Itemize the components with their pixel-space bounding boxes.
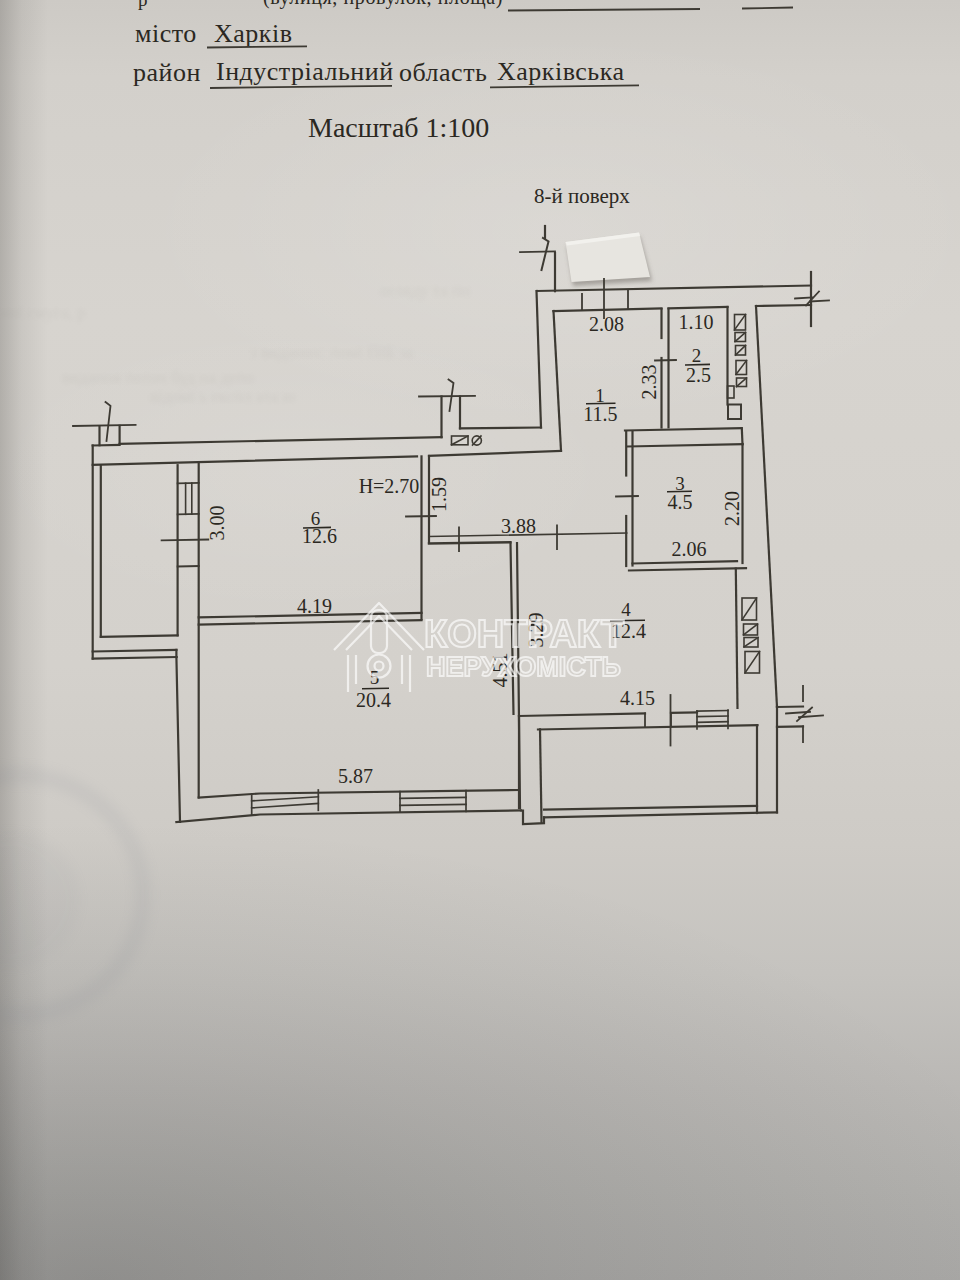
svg-text:4.15: 4.15	[620, 687, 655, 709]
svg-text:район: район	[133, 58, 201, 87]
svg-text:20.4: 20.4	[356, 689, 391, 711]
svg-text:2: 2	[692, 345, 702, 366]
svg-text:видання поточ буд на депо: видання поточ буд на депо	[62, 368, 254, 387]
svg-text:3.88: 3.88	[501, 515, 536, 537]
svg-text:11.5: 11.5	[583, 403, 617, 425]
svg-text:огляду та пн: огляду та пн	[380, 281, 470, 300]
svg-text:4.19: 4.19	[297, 595, 332, 617]
svg-text:2.20: 2.20	[721, 491, 743, 526]
svg-text:12.6: 12.6	[302, 525, 337, 547]
svg-text:2.5: 2.5	[686, 364, 711, 386]
svg-text:2.33: 2.33	[638, 365, 660, 400]
svg-text:8-й поверх: 8-й поверх	[534, 184, 630, 208]
svg-text:Масштаб 1:100: Масштаб 1:100	[308, 112, 489, 143]
svg-text:1.10: 1.10	[679, 311, 714, 333]
svg-text:ині смуга, р: ині смуга, р	[0, 303, 86, 322]
svg-text:3.00: 3.00	[206, 506, 228, 541]
svg-text:р: р	[138, 0, 148, 10]
svg-text:Харківська: Харківська	[497, 57, 624, 86]
svg-text:Індустріальний: Індустріальний	[216, 57, 394, 86]
svg-text:5.87: 5.87	[338, 765, 373, 787]
svg-text:H=2.70: H=2.70	[359, 475, 420, 497]
svg-text:1.59: 1.59	[428, 477, 450, 512]
svg-text:Харків: Харків	[214, 19, 292, 48]
svg-text:2.06: 2.06	[672, 538, 707, 560]
svg-text:НЕРУХОМІСТЬ: НЕРУХОМІСТЬ	[426, 652, 621, 682]
svg-text:КОНТРАКТ: КОНТРАКТ	[424, 613, 624, 655]
svg-text:область: область	[399, 58, 487, 87]
svg-text:відомі ь експл ата ю: відомі ь експл ата ю	[150, 387, 296, 406]
svg-text:з виданих: помі ПІБ за: з виданих: помі ПІБ за	[250, 343, 414, 362]
svg-text:2.08: 2.08	[589, 313, 624, 335]
svg-text:(вулиця, провулок, площа): (вулиця, провулок, площа)	[263, 0, 503, 9]
svg-text:місто: місто	[135, 19, 197, 48]
svg-text:4.5: 4.5	[668, 491, 693, 513]
